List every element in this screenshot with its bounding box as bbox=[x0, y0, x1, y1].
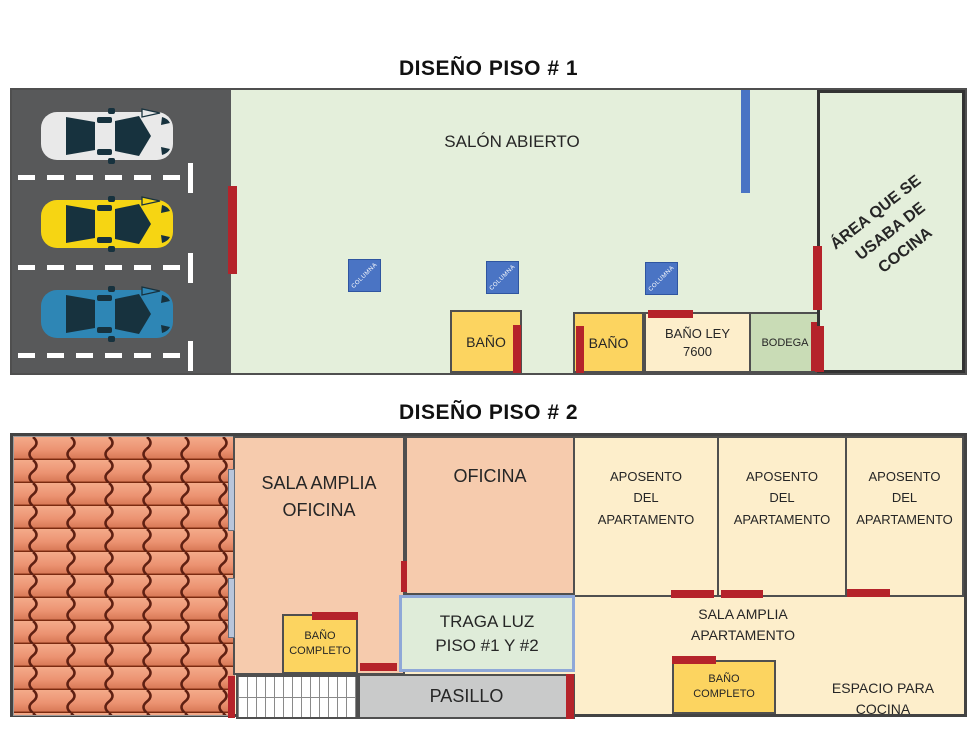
staircase bbox=[236, 675, 358, 719]
apartment-full-bathroom: BAÑO COMPLETO bbox=[672, 660, 776, 714]
door-marker bbox=[672, 656, 716, 664]
door-marker bbox=[228, 186, 237, 274]
parking-line-end bbox=[188, 253, 193, 283]
former-kitchen-area-label: ÁREA QUE SE USABA DE COCINA bbox=[813, 159, 969, 303]
door-marker bbox=[401, 561, 407, 592]
bathroom-law-7600-label: BAÑO LEY 7600 bbox=[665, 325, 730, 360]
apartment-bedroom-1-label: APOSENTO DEL APARTAMENTO bbox=[575, 466, 717, 530]
window-marker bbox=[228, 578, 235, 638]
window-marker bbox=[228, 469, 235, 531]
blue-car-top-view bbox=[38, 283, 182, 345]
office-room: OFICINA bbox=[405, 436, 575, 595]
column-marker: COLUMNA bbox=[645, 262, 678, 295]
floor1-title: DISEÑO PISO # 1 bbox=[10, 57, 967, 81]
kitchen-space-label: ESPACIO PARA COCINA bbox=[793, 678, 973, 720]
door-marker bbox=[228, 676, 235, 718]
door-marker bbox=[566, 674, 574, 719]
door-marker bbox=[847, 589, 890, 597]
roof-tiles bbox=[13, 436, 235, 716]
floor-plan-page: DISEÑO PISO # 1 bbox=[0, 0, 979, 743]
floor1-plan: SALÓN ABIERTO COLUMNA COLUMNA COLUMNA BA… bbox=[10, 88, 967, 375]
column-marker: COLUMNA bbox=[348, 259, 381, 292]
storage-room: BODEGA bbox=[749, 312, 821, 373]
floor2-title: DISEÑO PISO # 2 bbox=[10, 401, 967, 425]
bathroom-2-label: BAÑO bbox=[589, 335, 629, 351]
column-label: COLUMNA bbox=[648, 265, 676, 293]
bathroom-law-7600: BAÑO LEY 7600 bbox=[644, 312, 751, 373]
apartment-full-bathroom-label: BAÑO COMPLETO bbox=[693, 672, 755, 703]
column-label: COLUMNA bbox=[489, 264, 517, 292]
apartment-bedroom-2-label: APOSENTO DEL APARTAMENTO bbox=[719, 466, 845, 530]
door-marker bbox=[815, 326, 824, 372]
bathroom-1-label: BAÑO bbox=[466, 334, 506, 350]
floor2-plan: SALA AMPLIA OFICINA OFICINA APOSENTO DEL… bbox=[10, 433, 967, 717]
apartment-bedroom-2: APOSENTO DEL APARTAMENTO bbox=[717, 436, 847, 597]
parking-line-end bbox=[188, 163, 193, 193]
apartment-bedroom-3-label: APOSENTO DEL APARTAMENTO bbox=[847, 466, 962, 530]
parking-line bbox=[18, 175, 186, 180]
skylight: TRAGA LUZ PISO #1 Y #2 bbox=[399, 595, 575, 672]
door-marker bbox=[360, 663, 397, 671]
office-room-label: OFICINA bbox=[407, 466, 573, 487]
door-marker bbox=[513, 325, 521, 373]
white-car-top-view bbox=[38, 105, 182, 167]
parking-line bbox=[18, 353, 186, 358]
bathroom-1: BAÑO bbox=[450, 310, 522, 373]
partition-marker bbox=[741, 90, 750, 193]
hallway: PASILLO bbox=[358, 674, 575, 719]
parking-line bbox=[18, 265, 186, 270]
former-kitchen-area: ÁREA QUE SE USABA DE COCINA bbox=[817, 90, 965, 373]
door-marker bbox=[813, 246, 822, 310]
salon-abierto-label: SALÓN ABIERTO bbox=[382, 132, 642, 152]
column-label: COLUMNA bbox=[351, 262, 379, 290]
apartment-bedroom-3: APOSENTO DEL APARTAMENTO bbox=[845, 436, 964, 597]
office-full-bathroom-label: BAÑO COMPLETO bbox=[289, 629, 351, 660]
parking-line-end bbox=[188, 341, 193, 371]
parking-area bbox=[12, 90, 231, 373]
hallway-label: PASILLO bbox=[430, 686, 504, 707]
yellow-car-top-view bbox=[38, 193, 182, 255]
door-marker bbox=[648, 310, 693, 318]
storage-room-label: BODEGA bbox=[761, 337, 808, 349]
office-full-bathroom: BAÑO COMPLETO bbox=[282, 614, 358, 674]
door-marker bbox=[671, 590, 714, 598]
bathroom-2: BAÑO bbox=[573, 312, 644, 373]
door-marker bbox=[312, 612, 358, 620]
door-marker bbox=[721, 590, 763, 598]
skylight-label: TRAGA LUZ PISO #1 Y #2 bbox=[435, 610, 538, 658]
apartment-bedroom-1: APOSENTO DEL APARTAMENTO bbox=[573, 436, 719, 597]
apartment-living-room-label: SALA AMPLIA APARTAMENTO bbox=[633, 604, 853, 646]
office-living-room-label: SALA AMPLIA OFICINA bbox=[235, 470, 403, 524]
door-marker bbox=[576, 326, 584, 373]
column-marker: COLUMNA bbox=[486, 261, 519, 294]
